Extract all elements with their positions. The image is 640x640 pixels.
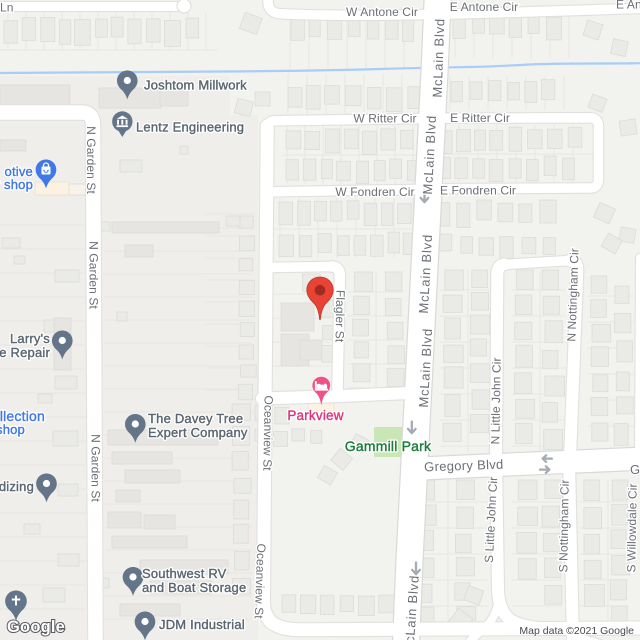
svg-text:W Ritter Cir: W Ritter Cir [353,112,416,126]
svg-text:E Ant: E Ant [616,0,640,12]
svg-text:E Fondren Cir: E Fondren Cir [440,184,516,198]
svg-text:N Garden St: N Garden St [87,241,101,309]
svg-text:ir shop: ir shop [0,177,33,192]
svg-text:W Fondren Cir: W Fondren Cir [335,185,414,199]
svg-text:W Antone Cir: W Antone Cir [346,5,418,19]
svg-text:Larry's: Larry's [10,331,50,346]
svg-text:Parkview: Parkview [287,408,343,423]
svg-text:Oceanview St: Oceanview St [260,395,275,471]
svg-text:E Ritter Cir: E Ritter Cir [450,111,510,125]
svg-text:Southwest RV: Southwest RV [142,566,227,581]
svg-text:Ln: Ln [0,1,14,15]
svg-text:Oceanview St: Oceanview St [252,543,269,619]
svg-text:and Boat Storage: and Boat Storage [142,580,246,595]
svg-text:The Davey Tree: The Davey Tree [148,411,243,426]
svg-text:N Garden St: N Garden St [89,434,103,502]
svg-text:Map data ©2021 Google: Map data ©2021 Google [519,625,634,637]
svg-text:S Willowdale Cir: S Willowdale Cir [624,483,640,572]
svg-text:N Garden St: N Garden St [84,126,98,194]
svg-text:Gammill Park: Gammill Park [345,438,432,454]
svg-text:McLain Blvd: McLain Blvd [430,18,448,98]
svg-text:G: G [630,462,640,477]
svg-text:JDM Industrial: JDM Industrial [159,617,245,632]
svg-text:S Nottingham Cir: S Nottingham Cir [556,479,572,572]
svg-text:Joshtom Millwork: Joshtom Millwork [144,78,247,93]
svg-text:e Repair: e Repair [0,345,50,360]
svg-text:Lentz Engineering: Lentz Engineering [136,120,244,135]
svg-text:shop: shop [0,422,25,437]
svg-text:Expert Company: Expert Company [148,425,248,440]
svg-text:E Antone Cir: E Antone Cir [450,0,519,14]
svg-text:Flagler St: Flagler St [333,290,348,343]
svg-text:Google: Google [7,618,65,636]
svg-text:N Little John Cir: N Little John Cir [488,357,504,444]
svg-text:dizing: dizing [0,479,34,494]
svg-text:Gregory Blvd: Gregory Blvd [424,457,504,475]
